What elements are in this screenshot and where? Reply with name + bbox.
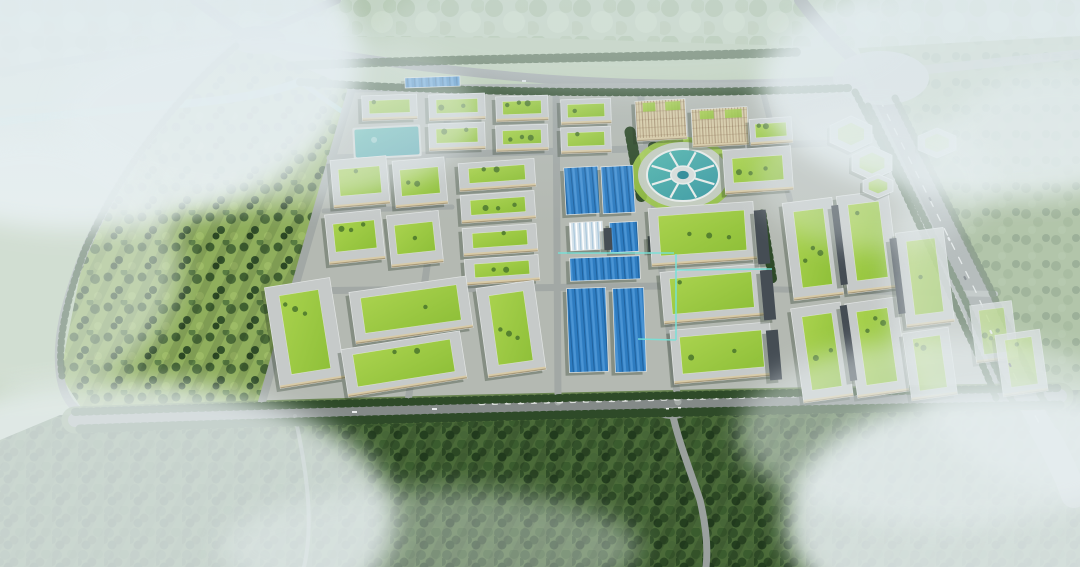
scene-canvas — [0, 0, 1080, 567]
atmosphere-tint — [0, 0, 1080, 567]
aerial-site-rendering — [0, 0, 1080, 567]
